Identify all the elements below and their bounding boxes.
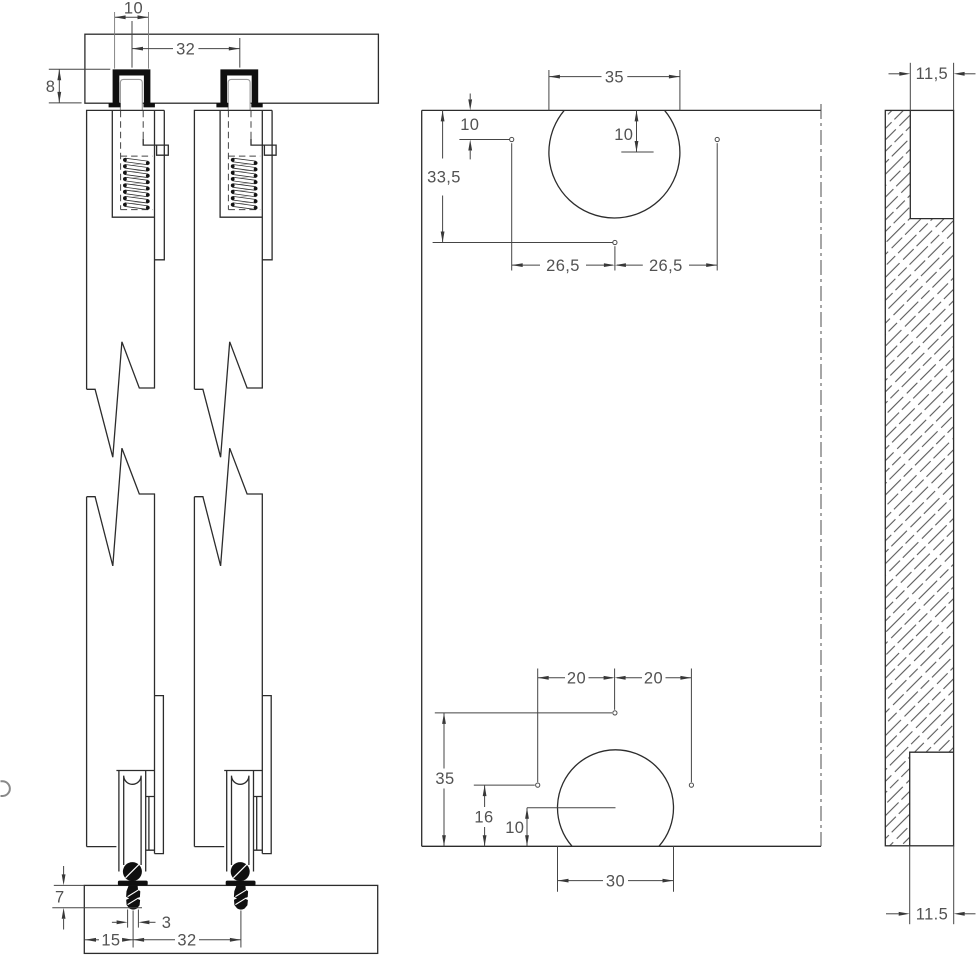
svg-text:20: 20 (644, 670, 663, 688)
svg-text:10: 10 (614, 126, 633, 144)
svg-text:15: 15 (101, 932, 120, 950)
svg-text:26,5: 26,5 (546, 257, 580, 275)
svg-text:33,5: 33,5 (427, 169, 461, 187)
svg-text:11.5: 11.5 (916, 905, 949, 923)
svg-text:8: 8 (46, 78, 56, 96)
svg-text:20: 20 (567, 670, 586, 688)
svg-text:32: 32 (176, 40, 195, 58)
svg-text:35: 35 (435, 770, 454, 788)
svg-text:3: 3 (162, 914, 172, 932)
svg-text:32: 32 (177, 932, 196, 950)
svg-text:10: 10 (460, 116, 479, 134)
svg-text:10: 10 (505, 819, 524, 837)
svg-text:7: 7 (55, 888, 65, 906)
svg-text:16: 16 (474, 809, 493, 827)
svg-text:26,5: 26,5 (649, 257, 683, 275)
svg-text:30: 30 (606, 872, 625, 890)
svg-text:10: 10 (124, 0, 143, 18)
svg-text:11,5: 11,5 (916, 65, 949, 83)
svg-text:35: 35 (605, 68, 624, 86)
